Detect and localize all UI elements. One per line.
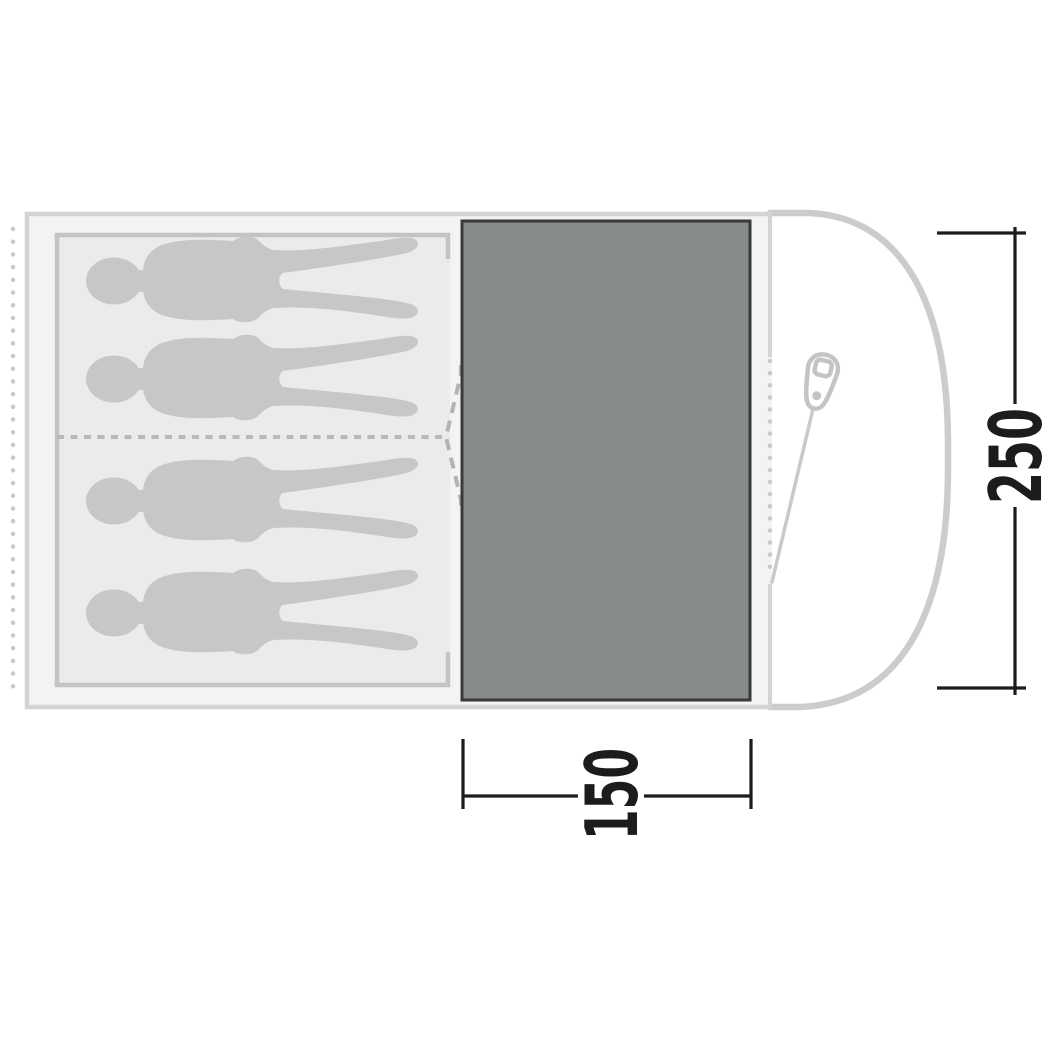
porch-outline: [770, 213, 948, 707]
dim-width-label: 150: [570, 748, 654, 840]
dim-depth-label: 250: [974, 408, 1045, 504]
tent-floorplan-diagram: 250 150: [0, 0, 1045, 1045]
living-area-panel: [462, 221, 750, 700]
